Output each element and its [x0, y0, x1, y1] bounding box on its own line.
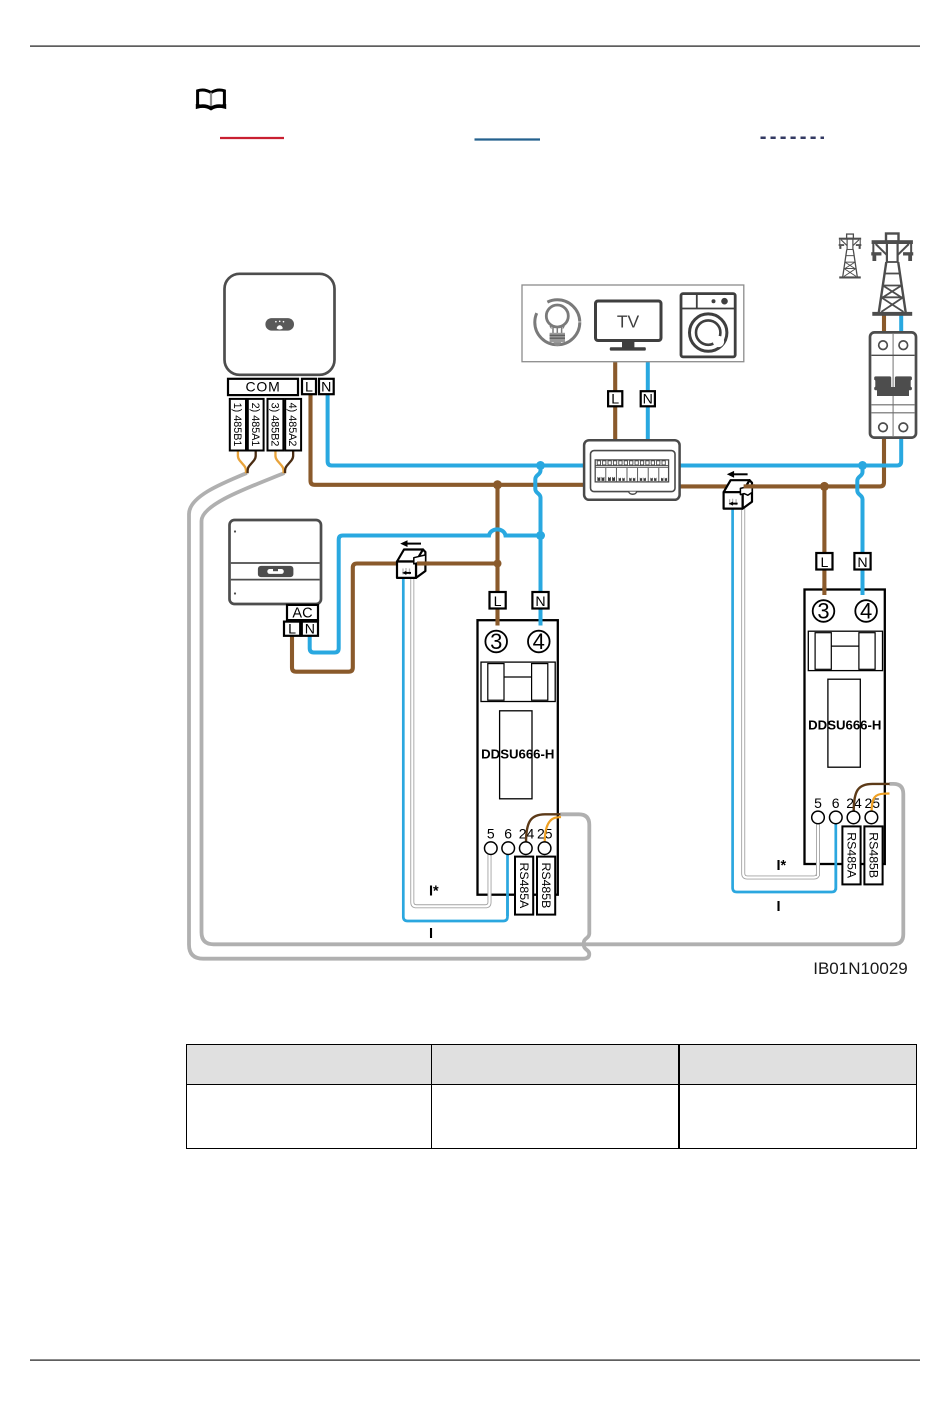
svg-text:N: N: [321, 379, 331, 395]
svg-text:AC: AC: [292, 605, 312, 621]
svg-text:I: I: [429, 926, 433, 942]
svg-text:5: 5: [487, 826, 495, 842]
svg-text:L: L: [611, 392, 619, 408]
svg-text:I: I: [777, 899, 781, 915]
svg-text:N: N: [857, 555, 867, 571]
svg-text:L: L: [494, 594, 502, 610]
svg-text:IB01N10029: IB01N10029: [813, 959, 908, 978]
svg-text:DDSU666-H: DDSU666-H: [481, 746, 554, 761]
svg-text:L: L: [305, 379, 313, 395]
svg-text:3: 3: [817, 598, 829, 623]
svg-text:RS485A: RS485A: [844, 832, 858, 879]
svg-text:N: N: [643, 392, 653, 408]
svg-text:2) 485A1: 2) 485A1: [249, 403, 261, 447]
svg-text:RS485B: RS485B: [539, 863, 553, 909]
svg-text:RS485B: RS485B: [866, 832, 880, 878]
svg-text:RS485A: RS485A: [517, 863, 531, 910]
svg-text:L: L: [288, 622, 296, 638]
svg-text:L: L: [820, 555, 828, 571]
svg-text:6: 6: [504, 826, 512, 842]
svg-text:4: 4: [533, 629, 545, 654]
svg-text:4) 485A2: 4) 485A2: [286, 403, 298, 447]
svg-text:I*: I*: [777, 858, 787, 874]
svg-text:DDSU666-H: DDSU666-H: [808, 717, 881, 732]
svg-text:I*: I*: [429, 884, 439, 900]
svg-text:4: 4: [860, 598, 872, 623]
svg-text:5: 5: [814, 795, 822, 811]
svg-text:1) 485B1: 1) 485B1: [231, 403, 243, 447]
svg-text:3) 485B2: 3) 485B2: [269, 403, 281, 447]
svg-text:COM: COM: [245, 378, 280, 394]
svg-text:6: 6: [832, 795, 840, 811]
svg-text:TV: TV: [617, 312, 640, 332]
svg-text:N: N: [535, 594, 545, 610]
svg-text:3: 3: [490, 629, 502, 654]
svg-text:N: N: [305, 622, 315, 638]
